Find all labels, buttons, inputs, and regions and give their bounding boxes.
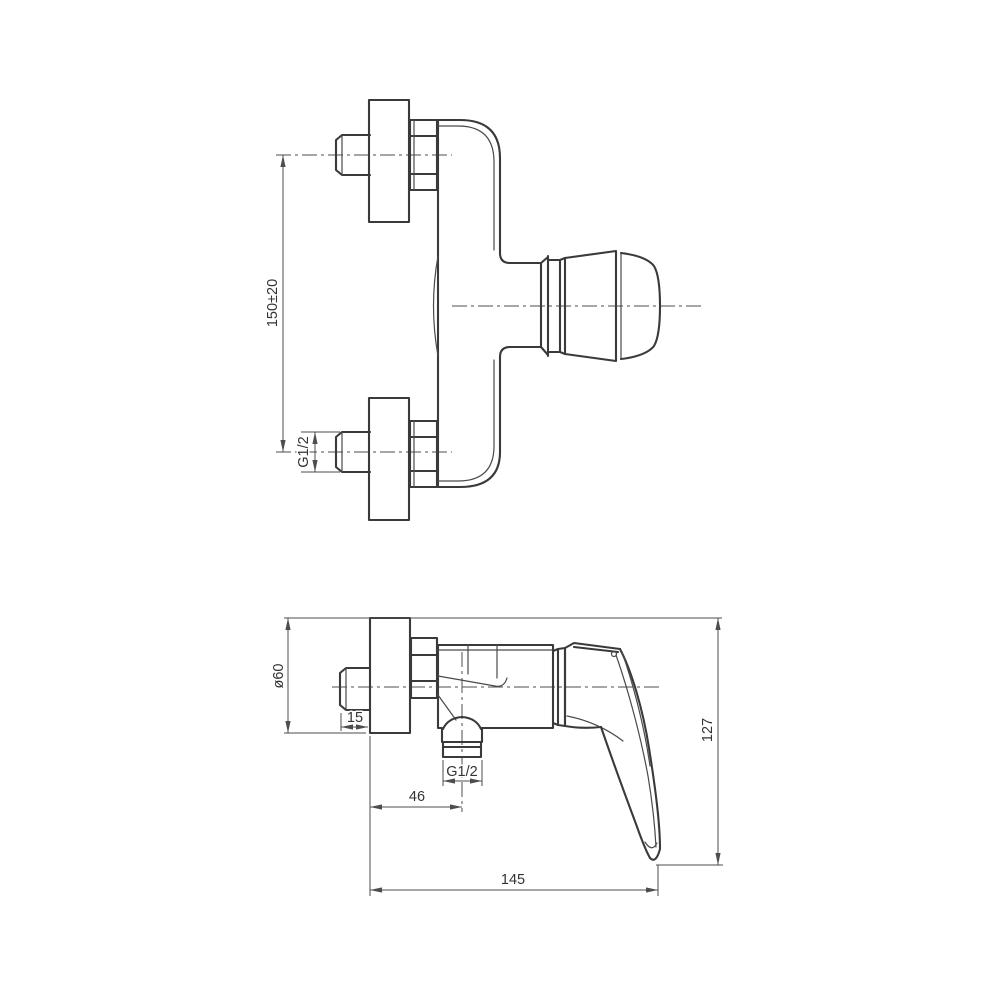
inlet-pipe-side [340,668,370,710]
handle-lever-tip [650,849,660,860]
body-inner-contour [438,126,494,481]
wall-flange-top [369,100,409,222]
union-nut-side [411,638,437,698]
dim-label-flange-diameter: ø60 [271,664,287,689]
technical-drawing-canvas: 150±20 G1/2 [0,0,1000,1000]
dim-label-overall-depth: 145 [501,872,525,888]
shower-mixer-drawing: 150±20 G1/2 [0,0,1000,1000]
front-view: 150±20 G1/2 [265,100,702,520]
dim-label-inlet-thread: G1/2 [296,436,312,467]
dim-label-eccentric-offset: 15 [347,710,363,726]
body-outline [438,120,541,487]
dim-label-outlet-from-wall: 46 [409,789,425,805]
dim-label-overall-height: 127 [700,718,716,742]
dim-label-outlet-thread: G1/2 [446,764,477,780]
body-side-internal-lines [438,645,507,720]
wall-flange-bottom [369,398,409,520]
wall-flange-side [370,618,410,733]
side-view: ø60 15 G1/2 46 127 145 [271,618,723,896]
dim-label-mount-distance: 150±20 [265,279,281,327]
